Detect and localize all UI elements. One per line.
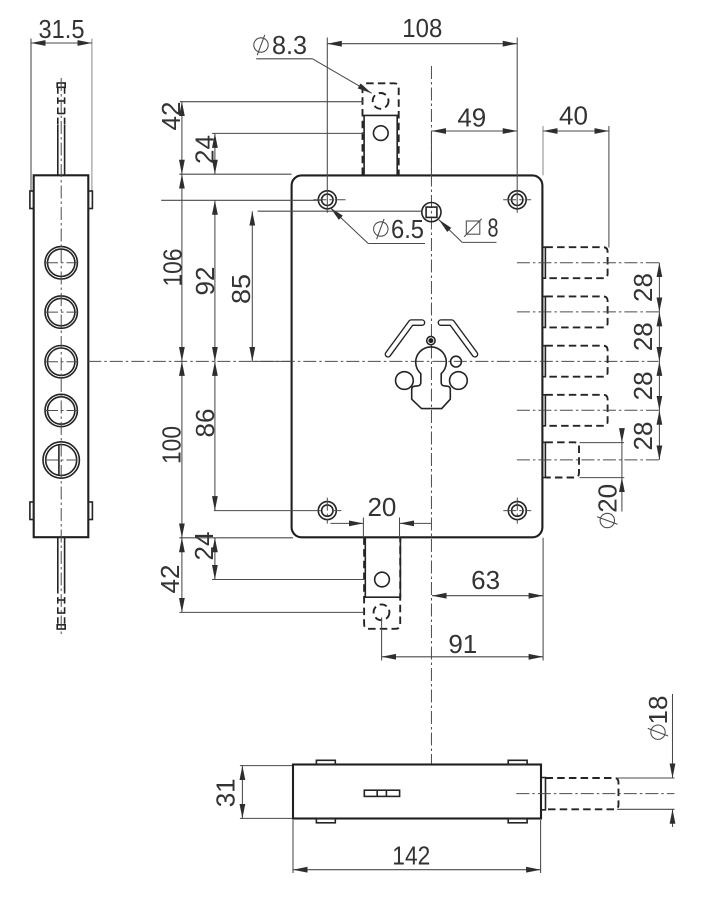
svg-text:108: 108 [402, 13, 442, 43]
svg-text:31.5: 31.5 [39, 14, 85, 44]
svg-text:42: 42 [155, 565, 185, 594]
svg-text:28: 28 [628, 422, 658, 451]
svg-text:106: 106 [157, 249, 187, 287]
svg-text:142: 142 [392, 840, 430, 870]
svg-text:40: 40 [559, 101, 588, 131]
svg-text:92: 92 [190, 267, 220, 296]
svg-text:6.5: 6.5 [391, 214, 424, 244]
svg-text:24: 24 [189, 135, 219, 164]
svg-text:18: 18 [643, 696, 673, 725]
svg-text:31: 31 [211, 778, 241, 807]
svg-text:20: 20 [367, 492, 396, 522]
svg-text:28: 28 [628, 371, 658, 400]
svg-text:63: 63 [471, 565, 500, 595]
svg-text:100: 100 [156, 426, 186, 464]
svg-text:28: 28 [628, 322, 658, 351]
svg-text:42: 42 [156, 102, 186, 131]
svg-text:8: 8 [488, 213, 499, 243]
svg-text:8.3: 8.3 [272, 30, 307, 60]
svg-text:28: 28 [628, 273, 658, 302]
svg-text:86: 86 [190, 409, 220, 438]
svg-text:24: 24 [189, 532, 219, 561]
svg-text:49: 49 [457, 102, 486, 132]
svg-text:91: 91 [448, 629, 477, 659]
svg-text:20: 20 [592, 484, 622, 513]
svg-text:85: 85 [226, 274, 256, 304]
